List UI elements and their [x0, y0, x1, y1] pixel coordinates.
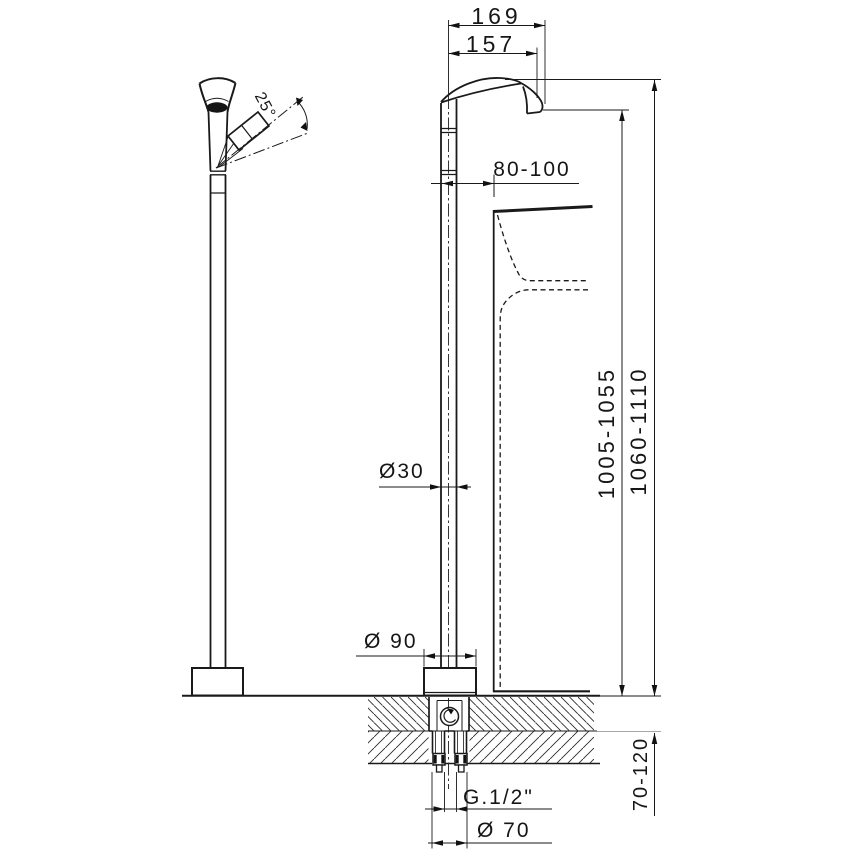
- drawing-canvas: [0, 0, 850, 850]
- side-view: [192, 78, 308, 695]
- basin-section: [493, 207, 593, 693]
- dim-label-rough-in-diameter: Ø 70: [477, 820, 531, 841]
- column-side: [211, 175, 226, 668]
- floor-section: [182, 696, 661, 765]
- dim-label-width-inner: 157: [444, 33, 538, 56]
- column-joints-side: [210, 171, 226, 193]
- floor-flange: [424, 668, 476, 696]
- spout-bell-rim: [200, 78, 236, 83]
- basin-rim: [493, 207, 593, 212]
- dim-label-connection-thread: G.1/2": [463, 787, 534, 808]
- dim-label-floor-recess: 70-120: [631, 715, 651, 833]
- spout-outlet-opening: [207, 102, 228, 112]
- technical-drawing-page: 169 157 25° 80-100 Ø30 1005-1055 1060-11…: [0, 0, 850, 850]
- floor-finish-hatch: [368, 697, 594, 731]
- dim-label-spout-overhang: 80-100: [484, 159, 580, 180]
- dim-label-overall-height: 1060-1110: [628, 332, 650, 530]
- basin-inner-profile: [498, 215, 589, 281]
- base-side: [192, 668, 243, 696]
- dim-label-base-diameter: Ø 90: [364, 631, 418, 652]
- floor-slab-hatch: [368, 731, 594, 764]
- dim-label-outlet-height: 1005-1055: [596, 334, 618, 532]
- dim-label-column-diameter: Ø30: [379, 461, 425, 482]
- dim-label-width-outer: 169: [448, 5, 545, 28]
